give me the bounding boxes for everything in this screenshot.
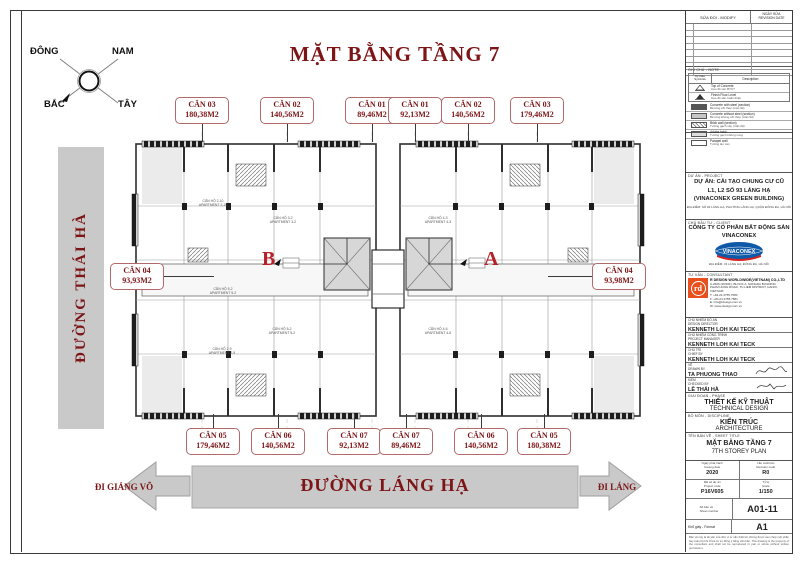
personnel-row: CHỦ NHIỆM ĐỒ ÁN DESIGN DIRECTOR KENNETH … [686,318,792,333]
legend-row: Parapet wallTường lan can [686,139,792,147]
unit-label-bottom-2: CĂN 06140,56M2 [251,428,305,455]
leader-line [544,414,545,428]
leader-line [354,414,355,428]
leader-line [213,414,214,428]
legend-section: GHI CHÚ - NOTE Ký hiệu Symbols Descripti… [686,67,792,133]
leader-line [537,124,538,142]
revision-code-label: Lần xuất bản Revision code [740,461,793,469]
legend-row: Concrete without steel (section)Bê tông … [686,112,792,121]
drawing-sheet: ĐÔNG NAM BẮC TÂY MẶT BẰNG TẦNG 7 ĐƯỜNG T… [0,0,800,565]
unit-label-top-4: CĂN 0192,13M2 [388,97,442,124]
legend-header: GHI CHÚ - NOTE [686,67,792,72]
rdesign-logo-text: rd [691,281,706,296]
street-label-thai-ha: ĐƯỜNG THÁI HÀ [73,212,90,363]
discipline-vi: KIẾN TRÚC [686,419,792,426]
disclaimer-text: Bản vẽ này là tài sản của đơn vị tư vấn … [686,534,792,552]
discipline-section: BỘ MÔN - DISCIPLINE KIẾN TRÚC ARCHITECTU… [686,413,792,433]
swatch-adobe-brick [691,131,707,137]
unit-label-top-6: CĂN 03179,46M2 [510,97,564,124]
page-title: MẶT BẰNG TẦNG 7 [240,42,550,67]
sheet-number-row: Số bản vẽ Sheet number A01-11 [686,499,792,520]
elevation-symbol-icon [695,85,705,91]
revision-date-header: NGÀY SỬA REVISION DATE [751,11,792,23]
project-name-line2: L1, L2 SỐ 93 LÁNG HẠ [686,187,792,196]
phase-vi: THIẾT KẾ KỸ THUẬT [686,399,792,406]
compass-label-dong: ĐÔNG [30,46,59,57]
unit-label-top-5: CĂN 02140,56M2 [441,97,495,124]
consultant-web: W: www.rdesign.com.vn [710,305,790,309]
unit-label-bottom-6: CĂN 05180,38M2 [517,428,571,455]
personnel-row: CHỦ NHIỆM CÔNG TRÌNH PROJECT MANAGER KEN… [686,333,792,348]
plan-unit-caption-en: APARTMENT 4-3 [425,220,451,224]
unit-label-top-2: CĂN 02140,56M2 [260,97,314,124]
personnel-row: VẼ DRAWN BY TA PHUONG THAO [686,363,792,378]
sheet-title-section: TÊN BẢN VẼ - SHEET TITLE MẶT BẰNG TẦNG 7… [686,433,792,461]
street-band-thai-ha: ĐƯỜNG THÁI HÀ [58,147,104,429]
swatch-concrete-steel [691,104,707,110]
format-value: A1 [732,522,792,532]
project-code-value: P16V605 [686,488,739,495]
unit-label-bottom-4: CĂN 0789,46M2 [379,428,433,455]
vinaconex-logo-text: VINACONEX [723,249,756,255]
consultant-section: TƯ VẤN - CONSULTANT rd R DESIGN WORLDWID… [686,272,792,318]
project-name-line1: DỰ ÁN: CẢI TẠO CHUNG CƯ CŨ [686,178,792,187]
leader-line [548,276,592,277]
swatch-concrete [691,113,707,119]
plan-corridor-bridge [372,250,404,308]
phase-header: GIAI ĐOẠN - PHASE [686,393,792,398]
phase-section: GIAI ĐOẠN - PHASE THIẾT KẾ KỸ THUẬT TECH… [686,393,792,413]
sheet-border-inner-left [21,11,22,552]
plan-unit-caption-en: APARTMENT 2-10 [199,203,227,207]
floor-plan: CĂN HỘ 2-10 APARTMENT 2-10 CĂN HỘ 3-2 AP… [128,130,648,430]
street-label-lang-ha: ĐƯỜNG LÁNG HẠ [250,475,520,496]
revision-modify-header: SỬA ĐỔI - MODIFY [686,11,751,23]
revision-code-value: R0 [740,469,793,476]
section-mark-b: B [262,248,275,271]
issue-date-value: 2020 [686,469,739,476]
sheet-title-en: 7TH STOREY PLAN [686,449,792,455]
leader-line [202,124,203,142]
scale-label: Tỷ lệ Scale [740,480,793,488]
unit-label-bottom-1: CĂN 05179,46M2 [186,428,240,455]
legend-row: Brick wall (section)Tường gạch xây (mặt … [686,121,792,130]
personnel-row: CHỦ TRÌ CHIEF BY KENNETH LOH KAI TECK [686,348,792,363]
meta-row-issue-rev: Ngày phát hành Issuing date 2020 Lần xuấ… [686,461,792,480]
legend-description-label: Description [712,74,789,83]
unit-label-top-1: CĂN 03180,38M2 [175,97,229,124]
issue-date-label: Ngày phát hành Issuing date [686,461,739,469]
titleblock: SỬA ĐỔI - MODIFY NGÀY SỬA REVISION DATE … [686,11,792,552]
plan-unit-caption-en: APARTMENT 5-2 [269,331,295,335]
sheet-title-header: TÊN BẢN VẼ - SHEET TITLE [686,433,792,438]
leader-line [406,414,407,428]
phase-en: TECHNICAL DESIGN [686,406,792,412]
personnel-section: CHỦ NHIỆM ĐỒ ÁN DESIGN DIRECTOR KENNETH … [686,318,792,393]
leader-line [164,276,214,277]
unit-label-right: CĂN 0493,98M2 [592,263,646,290]
unit-label-left: CĂN 0493,93M2 [110,263,164,290]
legend-row: Adobe brickTường gạch không nung [686,130,792,139]
unit-label-bottom-5: CĂN 06140,56M2 [454,428,508,455]
client-name-line2: VINACONEX [686,233,792,241]
project-name-line3: (VINACONEX GREEN BUILDING) [686,195,792,204]
compass-icon [56,55,122,107]
leader-line [287,124,288,142]
sheet-number-value: A01-11 [733,499,792,519]
scale-value: 1/150 [740,488,793,495]
legend-row: Finish Floor LevelCao độ sàn hoàn thiện [689,93,789,101]
arrow-label-giang-vo: ĐI GIẢNG VÕ [82,482,166,492]
swatch-parapet [691,140,707,146]
project-section: DỰ ÁN - PROJECT DỰ ÁN: CẢI TẠO CHUNG CƯ … [686,172,792,220]
leader-line [372,124,373,142]
sheet-title-vi: MẶT BẰNG TẦNG 7 [686,440,792,447]
leader-line [278,414,279,428]
format-label: Khổ giấy - Format [686,520,732,533]
rdesign-logo: rd [688,278,708,298]
plan-unit-caption-en: APARTMENT 2-9 [209,351,235,355]
legend-row: Concrete with steel (section)Bê tông cốt… [686,103,792,112]
legend-row: Top of ConcreteCao độ sàn BTCT [689,84,789,93]
plan-unit-caption-en: APARTMENT 5-2 [210,291,236,295]
plan-unit-caption-en: APARTMENT 4-6 [425,331,451,335]
format-row: Khổ giấy - Format A1 [686,520,792,534]
legend-symbols-label: Ký hiệu Symbols [689,74,712,83]
client-section: CHỦ ĐẦU TƯ - CLIENT CÔNG TY CỔ PHẦN BẤT … [686,220,792,272]
arrow-label-lang: ĐI LÁNG [584,482,650,492]
discipline-header: BỘ MÔN - DISCIPLINE [686,413,792,418]
leader-line [468,124,469,142]
unit-label-bottom-3: CĂN 0792,13M2 [327,428,381,455]
signature [754,380,788,392]
ffl-symbol-icon [695,94,705,100]
leader-line [481,414,482,428]
vinaconex-logo: VINACONEX [713,241,765,263]
project-code-label: Mã số dự án Project code [686,480,739,488]
section-mark-a: A [484,248,498,271]
revision-table: SỬA ĐỔI - MODIFY NGÀY SỬA REVISION DATE [686,11,792,67]
sheet-number-label: Số bản vẽ Sheet number [686,499,733,519]
swatch-brick [691,122,707,128]
meta-row-code-scale: Mã số dự án Project code P16V605 Tỷ lệ S… [686,480,792,499]
project-address: ĐỊA ĐIỂM: SỐ 93 LÁNG HẠ, PHƯỜNG LÁNG HẠ,… [686,206,792,210]
client-name-line1: CÔNG TY CỔ PHẦN BẤT ĐỘNG SẢN [686,225,792,233]
leader-line [415,124,416,142]
client-address: ĐỊA ĐIỂM: 34 LÁNG HẠ, ĐỐNG ĐA, HÀ NỘI [686,263,792,267]
discipline-en: ARCHITECTURE [686,426,792,432]
signature [754,365,788,377]
personnel-row: KIỂM CHECKED BY LÊ THÁI HÀ [686,378,792,393]
plan-unit-caption-en: APARTMENT 3-2 [270,220,296,224]
